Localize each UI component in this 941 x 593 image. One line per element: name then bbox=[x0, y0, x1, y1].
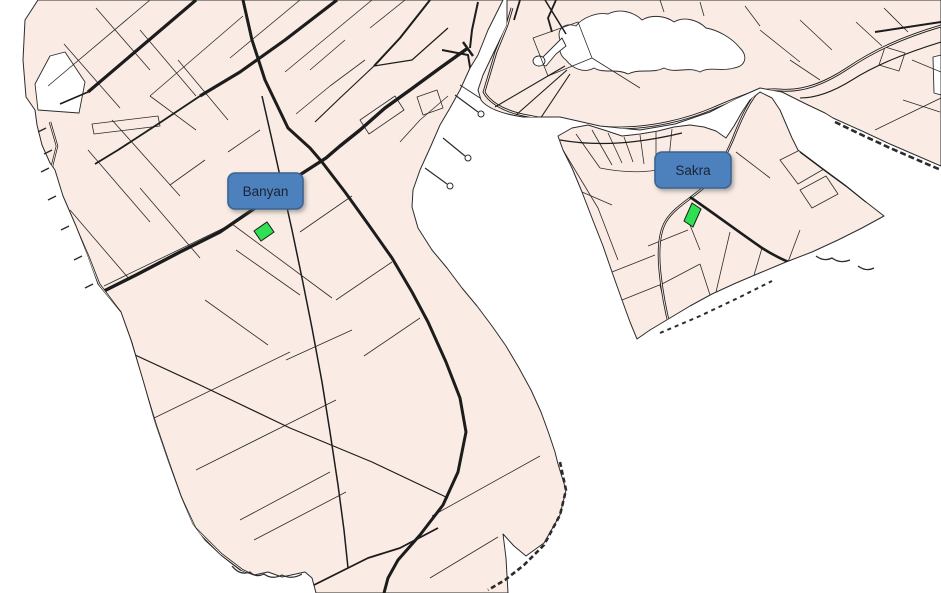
map-canvas: Banyan Sakra bbox=[0, 0, 941, 593]
banyan-label[interactable]: Banyan bbox=[228, 173, 303, 209]
inlet-east-edge bbox=[933, 55, 941, 95]
sakra-label-text: Sakra bbox=[675, 163, 711, 178]
banyan-label-text: Banyan bbox=[243, 184, 289, 199]
sakra-label[interactable]: Sakra bbox=[655, 152, 731, 188]
map-viewport: Banyan Sakra bbox=[0, 0, 941, 593]
